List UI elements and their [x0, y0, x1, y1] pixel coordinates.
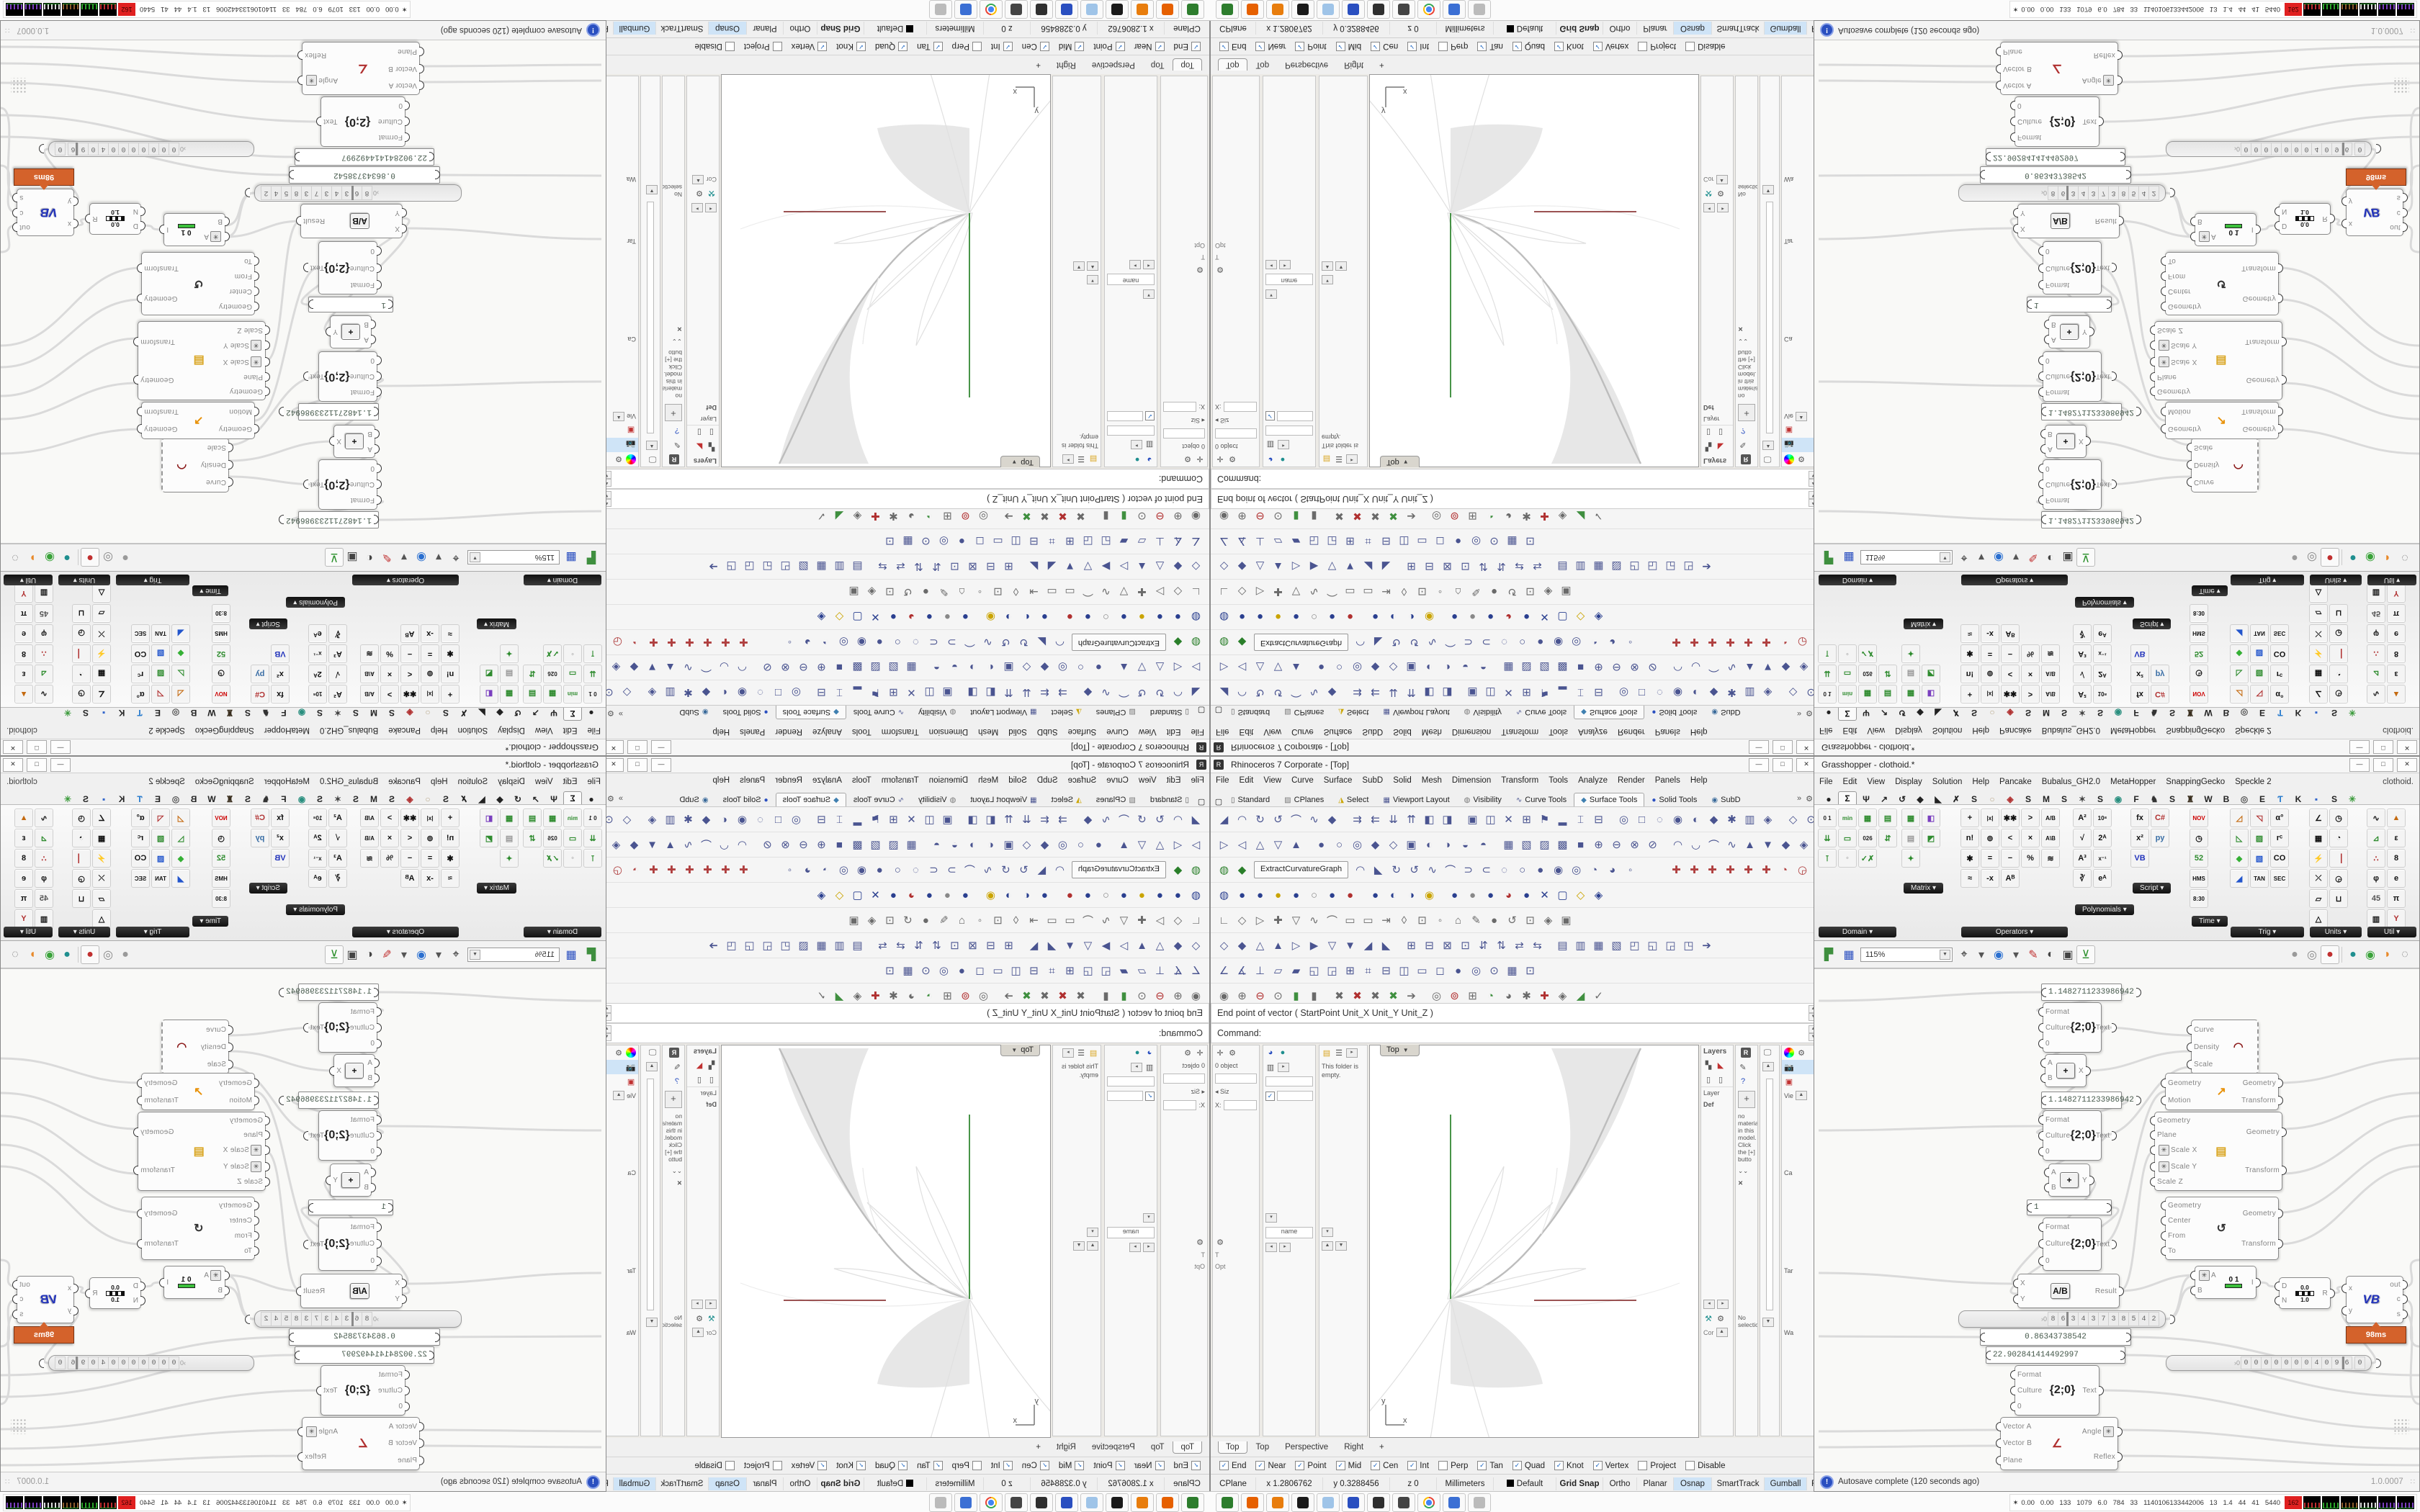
gh-category-tab-29[interactable]: ✳ [2344, 793, 2361, 805]
gh-category-tab-14[interactable]: ✶ [329, 707, 346, 719]
gh-input-plane[interactable]: Plane [388, 47, 419, 56]
toolbar-icon[interactable]: ○ [1305, 886, 1323, 904]
expand-button[interactable]: ▸ [1062, 455, 1074, 464]
toolbar-icon[interactable]: ◠ [1169, 683, 1187, 702]
gh-display-icon[interactable]: ◌ [6, 549, 24, 567]
dock-field[interactable] [1215, 428, 1257, 438]
toolbar-icon[interactable]: ▶ [1097, 936, 1115, 955]
toolbar-icon[interactable]: ◌ [1651, 810, 1669, 829]
gh-toolbar-icon[interactable]: ▣ [2059, 946, 2076, 963]
component-icon[interactable]: ▭ [563, 665, 582, 683]
education-icon[interactable]: ◕ [1144, 1048, 1155, 1058]
rhino-menu-item[interactable]: SubD [1032, 727, 1063, 736]
gh-component[interactable]: GeometryPlane✳Scale X✳Scale YScale Z▤Geo… [138, 321, 266, 400]
toolbar-icon[interactable]: ⇄ [892, 557, 910, 576]
checkbox-icon[interactable]: ✓ [1295, 42, 1304, 51]
component-icon[interactable]: ⚡ [92, 644, 111, 663]
toolbar-icon[interactable]: ⌂ [1449, 582, 1467, 601]
prev-button[interactable]: ◂ [1265, 1243, 1277, 1252]
toolbar-icon[interactable]: ● [938, 608, 956, 626]
toolbar-icon[interactable]: ▢ [1554, 886, 1572, 904]
dropdown-button[interactable]: ▾ [1322, 275, 1333, 284]
toolbar-icon[interactable]: ◍ [1187, 860, 1205, 879]
toolbar-icon[interactable]: ⌒ [1323, 582, 1341, 601]
toolbar-tab-select[interactable]: ◮Select [1331, 793, 1376, 806]
component-icon[interactable]: ◔ [72, 665, 91, 683]
toolbar-icon[interactable]: ⌒ [1705, 658, 1723, 677]
gh-category-tab-29[interactable]: ✳ [59, 707, 76, 719]
gh-input-b[interactable]: B [204, 1286, 225, 1295]
gh-category-tab-21[interactable]: W [2200, 793, 2217, 805]
component-icon[interactable]: eᴬ [2093, 624, 2112, 643]
toolbar-icon[interactable]: ⌶ [830, 683, 848, 702]
gh-menu-item[interactable]: Display [1890, 726, 1927, 734]
component-icon[interactable]: φ [2367, 624, 2385, 643]
toolbar-icon[interactable]: ✓ [1590, 507, 1608, 526]
toolbar-icon[interactable]: ⌂ [1449, 911, 1467, 930]
toolbar-icon[interactable]: ◈ [607, 658, 625, 677]
toolbar-icon[interactable]: ⊖ [794, 835, 812, 854]
toolbar-icon[interactable]: ◇ [1187, 936, 1205, 955]
osnap-mid[interactable]: ✓Mid [1059, 1461, 1085, 1470]
toolbar-icon[interactable]: ➔ [704, 936, 722, 955]
gh-output-geometry[interactable]: Geometry [142, 1209, 179, 1218]
materials-panel[interactable]: R ✎ ? + no material in this model. Click… [662, 76, 685, 467]
toolbar-icon[interactable]: ↻ [1151, 683, 1169, 702]
gh-component[interactable]: XYA/BResult [2017, 204, 2120, 238]
gh-input-to[interactable]: To [219, 1246, 254, 1256]
gh-category-tab-29[interactable]: ✳ [59, 793, 76, 805]
toolbar-tab-viewport-layout[interactable]: ▦Viewport Layout [963, 793, 1044, 806]
gh-component[interactable]: GeometryMotion↗GeometryTransform [141, 402, 255, 439]
rhino-menu-item[interactable]: Render [770, 727, 807, 736]
gh-category-tab-19[interactable]: S [239, 707, 256, 719]
toolbar-icon[interactable]: ⊕ [1169, 507, 1187, 526]
toolbar-icon[interactable]: ◇ [1384, 658, 1402, 677]
status-gumball[interactable]: Gumball [613, 22, 655, 35]
toolbar-icon[interactable]: ● [1366, 608, 1384, 626]
component-icon[interactable]: ▧ [151, 644, 170, 663]
scroll-up-button[interactable]: ▲ [613, 412, 624, 421]
toolbar-icon[interactable]: ▷ [1187, 658, 1205, 677]
toolbar-icon[interactable]: ▲ [1269, 936, 1287, 955]
toolbar-icon[interactable]: ∟ [1187, 911, 1205, 930]
component-icon[interactable]: ◢ [171, 624, 190, 643]
component-icon[interactable]: rᶜ [2270, 665, 2289, 683]
gh-category-tab-28[interactable]: S [2326, 707, 2343, 719]
resize-grip-icon[interactable]: ∷ [2411, 1478, 2419, 1486]
toolbar-icon[interactable]: ⇅ [1492, 936, 1510, 955]
component-icon[interactable]: x⁻¹ [308, 644, 327, 663]
gh-input-culture[interactable]: Culture [378, 117, 405, 127]
toolbar-icon[interactable]: ◠ [1233, 683, 1251, 702]
gh-input-scale-x[interactable]: ✳Scale X [223, 356, 265, 367]
gh-menu-item[interactable]: Edit [558, 778, 583, 786]
toolbar-icon[interactable]: ⊡ [1521, 532, 1539, 551]
ribbon-category-bar[interactable]: Trig ▾ [116, 927, 189, 937]
toolbar-icon[interactable]: ◠ [1669, 658, 1687, 677]
toolbar-icon[interactable]: ⊡ [1521, 911, 1539, 930]
toolbar-icon[interactable]: ◫ [920, 810, 938, 829]
component-icon[interactable]: √ [328, 829, 347, 847]
component-icon[interactable]: 026 [543, 829, 562, 847]
gh-category-tab-27[interactable]: ▪ [95, 793, 112, 805]
toolbar-icon[interactable]: ◈ [607, 835, 625, 854]
toolbar-icon[interactable]: ↺ [1133, 810, 1151, 829]
toolbar-icon[interactable]: ▣ [845, 582, 863, 601]
gh-input-y[interactable]: y [68, 1306, 73, 1315]
gh-input-y[interactable]: y [68, 197, 73, 206]
gh-component[interactable]: FormatCulture0{2;0}Text [318, 241, 377, 294]
toolbar-icon[interactable]: ◆ [1169, 936, 1187, 955]
scrollbar[interactable] [647, 1079, 654, 1310]
gh-input-a[interactable]: A [367, 1058, 375, 1068]
toolbar-icon[interactable]: ◇ [1169, 911, 1187, 930]
rhino-menu-item[interactable]: Tools [847, 776, 877, 785]
toolbar-tab-curve-tools[interactable]: ∿Curve Tools [846, 793, 911, 806]
gh-input-format[interactable]: Format [350, 280, 377, 289]
component-icon[interactable]: ✦ [500, 849, 519, 868]
toolbar-icon[interactable]: ○ [1513, 860, 1531, 879]
maximize-button[interactable]: □ [2373, 758, 2393, 772]
toolbar-icon[interactable]: ⊡ [1521, 582, 1539, 601]
camera-icon[interactable]: 📷 [626, 1062, 636, 1072]
gh-display-icon[interactable]: ● [58, 946, 76, 963]
osnap-end[interactable]: ✓End [1219, 42, 1246, 51]
gh-component[interactable]: xyVBoutcs [17, 189, 74, 236]
toolbar-icon[interactable]: ▭ [989, 532, 1007, 551]
gh-category-tab-19[interactable]: S [2164, 707, 2181, 719]
rhino-menu-item[interactable]: Solid [1388, 776, 1417, 785]
taskbar-docs-icon[interactable] [954, 0, 977, 19]
toolbar-icon[interactable]: ◈ [1795, 835, 1813, 854]
gh-component[interactable]: FormatCulture0{2;0}Text [2043, 1218, 2102, 1271]
component-icon[interactable]: ⇊ [1818, 665, 1837, 683]
status-ortho[interactable]: Ortho [783, 22, 817, 35]
toolbar-icon[interactable]: ◎ [935, 532, 953, 551]
toolbar-icon[interactable]: ▣ [1557, 911, 1575, 930]
component-icon[interactable]: 8 [2387, 849, 2406, 868]
scroll-down-button[interactable]: ▼ [1073, 1241, 1085, 1251]
toolbar-icon[interactable]: ▽ [1287, 911, 1305, 930]
component-icon[interactable]: 8:30 [2190, 889, 2208, 908]
gh-output-text[interactable]: Text [308, 1240, 325, 1249]
taskbar-screenshot-icon[interactable] [1367, 1493, 1390, 1512]
toolbar-icon[interactable]: ○ [1072, 658, 1090, 677]
status-ortho[interactable]: Ortho [1603, 22, 1637, 35]
gh-input-format[interactable]: Format [2043, 1223, 2070, 1232]
toolbar-icon[interactable]: ◌ [1495, 860, 1513, 879]
checkbox-icon[interactable]: ✓ [1219, 1461, 1229, 1470]
toolbar-icon[interactable]: ● [1169, 608, 1187, 626]
gh-menu-item[interactable]: Bubalus_GH2.0 [315, 778, 383, 786]
toolbar-icon[interactable]: ◆ [1705, 810, 1723, 829]
toolbar-icon[interactable]: ◎ [1615, 810, 1633, 829]
gh-display-icon[interactable]: ● [117, 946, 134, 963]
gh-number-slider[interactable]: ›0000000040960 [48, 1355, 254, 1371]
toolbar-icon[interactable]: ◇ [1215, 936, 1233, 955]
toolbar-tab-visibility[interactable]: ◍Visibility [911, 793, 963, 806]
gh-input-center[interactable]: Center [2166, 287, 2201, 296]
component-icon[interactable]: ✱✱ [2001, 685, 2020, 703]
copy-layer-icon[interactable]: ▯ [1716, 1074, 1726, 1084]
osnap-quad[interactable]: ✓Quad [1512, 42, 1545, 51]
scroll-up-button[interactable]: ▲ [646, 441, 658, 450]
status-ortho[interactable]: Ortho [783, 1477, 817, 1490]
toolbar-icon[interactable]: ◲ [740, 557, 758, 576]
gh-canvas[interactable]: 1.1482711233986942FormatCulture0{2;0}Tex… [1, 968, 606, 1475]
gh-input-x[interactable]: X [2018, 1279, 2025, 1288]
component-icon[interactable]: ◿ [2230, 685, 2249, 703]
gh-toolbar-icon[interactable]: ▾ [395, 946, 413, 963]
component-icon[interactable]: ◩ [480, 829, 498, 847]
taskbar-terminal-icon[interactable] [1181, 0, 1204, 19]
status-default[interactable]: Default [1494, 22, 1556, 35]
gh-panel[interactable]: 1.1482711233986942 [2041, 984, 2122, 1001]
dropdown-button[interactable]: ▾ [1087, 1228, 1098, 1237]
gh-toolbar-icon[interactable]: ▾ [430, 549, 447, 567]
toolbar-icon[interactable]: ◎ [1567, 633, 1585, 652]
toolbar-icon[interactable]: ▧ [884, 658, 902, 677]
gh-component[interactable]: GeometryMotion↗GeometryTransform [2165, 1073, 2279, 1110]
component-icon[interactable]: < [2001, 829, 2020, 847]
component-icon[interactable]: Y [14, 584, 33, 603]
component-icon[interactable]: 2ᴬ [308, 829, 327, 847]
osnap-vertex[interactable]: ✓Vertex [1593, 42, 1629, 51]
prev-button[interactable]: ◂ [1143, 1243, 1155, 1252]
gh-category-tab-14[interactable]: ✶ [2074, 793, 2091, 805]
ribbon-category-bar[interactable]: Units ▾ [2310, 927, 2362, 937]
toolbar-icon[interactable]: ● [1151, 608, 1169, 626]
toolbar-icon[interactable]: ⌂ [953, 582, 971, 601]
gh-component[interactable]: AB+Y [2048, 1164, 2090, 1197]
resize-grip-icon[interactable]: ∷ [1, 27, 9, 35]
toolbar-icon[interactable]: ▦ [1500, 658, 1518, 677]
zoom-dropdown[interactable]: 115%▼ [467, 551, 560, 565]
toolbar-icon[interactable]: ◆ [1169, 633, 1187, 652]
gh-component[interactable]: ✳AB0 1I [2195, 213, 2257, 246]
education-icon[interactable]: ◕ [1265, 454, 1276, 464]
gh-number-slider[interactable]: ›086343738542 [254, 1310, 462, 1328]
gear-icon[interactable]: ⚙ [1183, 454, 1193, 464]
gh-input-0[interactable]: 0 [2043, 1039, 2070, 1048]
toolbar-icon[interactable]: ∡ [1169, 532, 1187, 551]
gh-panel[interactable]: 1.1482711233986942 [2041, 403, 2122, 420]
rhino-menu-item[interactable]: Help [707, 727, 735, 736]
toolbar-tab-select[interactable]: ◮Select [1331, 706, 1376, 719]
component-icon[interactable]: ▦ [543, 809, 562, 827]
gh-output-text[interactable]: Text [321, 1386, 338, 1395]
gh-input-curve[interactable]: Curve [2192, 1025, 2219, 1035]
toolbar-icon[interactable]: ◱ [1097, 961, 1115, 980]
checkbox-icon[interactable]: ✓ [1255, 1461, 1265, 1470]
toolbar-icon[interactable]: ◁ [1233, 658, 1251, 677]
gh-menu-item[interactable]: Bubalus_GH2.0 [2037, 726, 2105, 734]
toolbar-icon[interactable]: ● [1287, 608, 1305, 626]
gh-input-culture[interactable]: Culture [2043, 1239, 2070, 1248]
gh-input-geometry[interactable]: Geometry [219, 1079, 254, 1088]
toolbar-icon[interactable]: ⌒ [1323, 911, 1341, 930]
rhino-menu-item[interactable]: Analyze [1573, 776, 1613, 785]
toolbar-icon[interactable]: ◎ [1054, 658, 1072, 677]
component-icon[interactable]: NOV [2190, 685, 2208, 703]
toolbar-icon[interactable]: ⊘ [1644, 658, 1662, 677]
component-icon[interactable]: x⁻¹ [2093, 644, 2112, 663]
toolbar-icon[interactable]: ▼ [1061, 557, 1079, 576]
gh-toolbar-icon[interactable]: ▾ [2007, 946, 2025, 963]
toolbar-icon[interactable]: ✱ [679, 683, 697, 702]
component-icon[interactable]: n! [441, 829, 460, 847]
gear-icon[interactable]: ✛ [1195, 1048, 1205, 1058]
toolbar-icon[interactable]: ◎ [935, 961, 953, 980]
toolbar-icon[interactable]: ▩ [848, 658, 866, 677]
component-icon[interactable]: ◢ [2230, 869, 2249, 888]
save-file-icon[interactable]: ▦ [563, 549, 580, 567]
toolbar-icon[interactable]: ⊕ [812, 835, 830, 854]
gh-component[interactable]: GeometryPlane✳Scale X✳Scale YScale Z▤Geo… [2154, 1112, 2282, 1191]
toolbar-icon[interactable]: ↻ [1015, 860, 1033, 879]
gh-input-plane[interactable]: Plane [223, 372, 265, 382]
component-icon[interactable]: ⊔ [2329, 889, 2348, 908]
gh-component[interactable]: DN0.01.0R [2279, 1277, 2331, 1309]
toolbar-icon[interactable]: ◫ [1482, 683, 1500, 702]
gh-output-geometry[interactable]: Geometry [138, 375, 175, 384]
component-icon[interactable]: ▥ [35, 584, 53, 603]
taskbar-floppy64-icon[interactable] [1342, 0, 1365, 19]
component-icon[interactable]: ≈ [441, 869, 460, 888]
gh-output-text[interactable]: Text [2082, 117, 2099, 127]
gh-input-vector-a[interactable]: Vector A [2001, 81, 2032, 90]
ribbon-category-bar[interactable]: Util ▾ [2367, 575, 2416, 585]
component-icon[interactable]: ∠ [2309, 809, 2328, 827]
toolbar-icon[interactable]: ◊ [1007, 582, 1025, 601]
gh-input-a[interactable]: A [364, 335, 371, 344]
rhino-menu-item[interactable]: Surface [1063, 727, 1102, 736]
gh-input-vector-a[interactable]: Vector A [2001, 1422, 2032, 1431]
gh-input-format[interactable]: Format [2043, 280, 2070, 289]
checkbox-icon[interactable]: ✓ [1512, 1461, 1522, 1470]
gh-menu-item[interactable]: Solution [1927, 726, 1968, 734]
gh-menu-item[interactable]: Help [1967, 778, 1994, 786]
gh-output-c[interactable]: c [17, 208, 30, 217]
component-icon[interactable]: |x| [1981, 685, 1999, 703]
gear-icon[interactable]: ⚙ [1806, 708, 1813, 718]
toolbar-icon[interactable]: ◆ [625, 835, 643, 854]
gh-input-density[interactable]: Density [201, 461, 228, 470]
toolbar-icon[interactable]: ◔ [1775, 633, 1793, 652]
gh-input-scale-z[interactable]: Scale Z [223, 325, 265, 335]
gh-category-tab-1[interactable]: Σ [1838, 791, 1857, 805]
toolbar-icon[interactable]: ▭ [989, 961, 1007, 980]
rhino-menu-item[interactable]: Mesh [1417, 776, 1447, 785]
gh-menu-item[interactable]: Speckle 2 [2230, 726, 2277, 734]
toolbar-icon[interactable]: ● [917, 582, 935, 601]
component-icon[interactable]: ◹ [2250, 809, 2269, 827]
checkbox-icon[interactable]: ✓ [1116, 1461, 1125, 1470]
component-icon[interactable]: TAN [2250, 624, 2269, 643]
toolbar-icon[interactable]: ◌ [907, 860, 925, 879]
toolbar-icon[interactable]: ◇ [830, 886, 848, 904]
toolbar-icon[interactable]: ⊟ [982, 557, 1000, 576]
toolbar-icon[interactable]: ✚ [735, 633, 753, 652]
gear-icon[interactable]: ⚙ [1195, 265, 1205, 275]
gh-component[interactable]: FormatCulture0{2;0}Text [2043, 351, 2102, 402]
left-dock-panel-3[interactable]: ▤☰▸ This folder is empty. ▾ ▲▼ [1052, 76, 1101, 467]
gh-menu-item[interactable]: Edit [1838, 778, 1863, 786]
component-icon[interactable]: ▭ [563, 829, 582, 847]
gh-output-reflex[interactable]: Reflex [302, 51, 338, 60]
component-icon[interactable]: ▥ [35, 909, 53, 928]
component-icon[interactable]: C# [2151, 809, 2169, 827]
toolbar-tab-standard[interactable]: ▯Standard [1224, 793, 1277, 806]
extract-curvature-graph-button[interactable]: ExtractCurvatureGraph [1254, 634, 1348, 651]
gh-category-tab-3[interactable]: ↗ [1875, 707, 1893, 719]
add-material-button[interactable]: + [665, 1091, 682, 1108]
toolbar-icon[interactable]: ● [1485, 582, 1503, 601]
gh-toolbar-icon[interactable]: ⊻ [325, 549, 344, 567]
gh-output-r[interactable]: R [2322, 215, 2330, 224]
gh-input-scale-y[interactable]: ✳Scale Y [2155, 340, 2197, 351]
toolbar-tab-surface-tools[interactable]: ◆Surface Tools [1574, 793, 1644, 806]
gh-input-y[interactable]: Y [2018, 1295, 2025, 1304]
component-icon[interactable]: × [2021, 665, 2040, 683]
osnap-knot[interactable]: ✓Knot [836, 42, 866, 51]
gh-category-tab-23[interactable]: ◎ [167, 707, 184, 719]
toolbar-icon[interactable]: ▭ [1413, 532, 1431, 551]
component-icon[interactable]: A\B [2041, 829, 2060, 847]
ribbon-category-tag[interactable]: Script ▾ [2133, 618, 2171, 629]
gh-input-vector-b[interactable]: Vector B [2001, 64, 2032, 73]
gh-input-curve[interactable]: Curve [2192, 478, 2219, 487]
osnap-near[interactable]: ✓Near [1255, 42, 1286, 51]
toolbar-icon[interactable]: ⊞ [938, 507, 956, 526]
ribbon-category-tag[interactable]: Time ▾ [2192, 585, 2228, 596]
component-icon[interactable]: eᴬ [308, 869, 327, 888]
toolbar-icon[interactable]: ⊙ [1269, 507, 1287, 526]
gh-category-tab-4[interactable]: ↺ [1894, 793, 1911, 805]
component-icon[interactable]: ◆ [2230, 644, 2249, 663]
toolbar-icon[interactable]: ◁ [1169, 835, 1187, 854]
left-dock-panel-2[interactable]: ◕● ▥▸ ✓ ▾ name ◂▸ [1104, 1045, 1157, 1436]
gh-output-out[interactable]: out [2390, 222, 2403, 232]
osnap-cen[interactable]: ✓Cen [1022, 1461, 1049, 1470]
rhino-menu-item[interactable]: Mesh [973, 727, 1003, 736]
toolbar-icon[interactable]: ◆ [1777, 835, 1795, 854]
toolbar-icon[interactable]: ◑ [964, 835, 982, 854]
toolbar-icon[interactable]: ◳ [722, 557, 740, 576]
component-icon[interactable]: 8:30 [212, 889, 230, 908]
gh-menu-item[interactable]: MetaHopper [259, 726, 315, 734]
gh-output-geometry[interactable]: Geometry [142, 1079, 179, 1088]
rhino-menu-item[interactable]: View [1134, 727, 1162, 736]
toolbar-icon[interactable]: ↻ [1015, 633, 1033, 652]
dropdown-button[interactable]: ▾ [1143, 289, 1155, 299]
status-grid-snap[interactable]: Grid Snap [1556, 22, 1603, 35]
toolbar-icon[interactable]: ◉ [853, 633, 871, 652]
gh-input-x[interactable]: x [2347, 1284, 2352, 1293]
gh-input-0[interactable]: 0 [350, 1256, 377, 1266]
component-icon[interactable]: ◷ [212, 829, 230, 847]
gh-input-b[interactable]: B [2195, 1286, 2216, 1295]
toolbar-icon[interactable]: ▭ [1359, 582, 1377, 601]
checkbox-icon[interactable]: ✓ [1040, 1461, 1049, 1470]
rhino-menu-item[interactable]: View [1134, 776, 1162, 785]
taskbar-chrome-icon[interactable] [980, 1493, 1003, 1512]
save-file-icon[interactable]: ▦ [1840, 946, 1857, 963]
component-icon[interactable]: ◦ [1838, 644, 1857, 663]
name-field[interactable]: name [1107, 274, 1155, 285]
toolbar-icon[interactable]: ◡ [1687, 658, 1705, 677]
